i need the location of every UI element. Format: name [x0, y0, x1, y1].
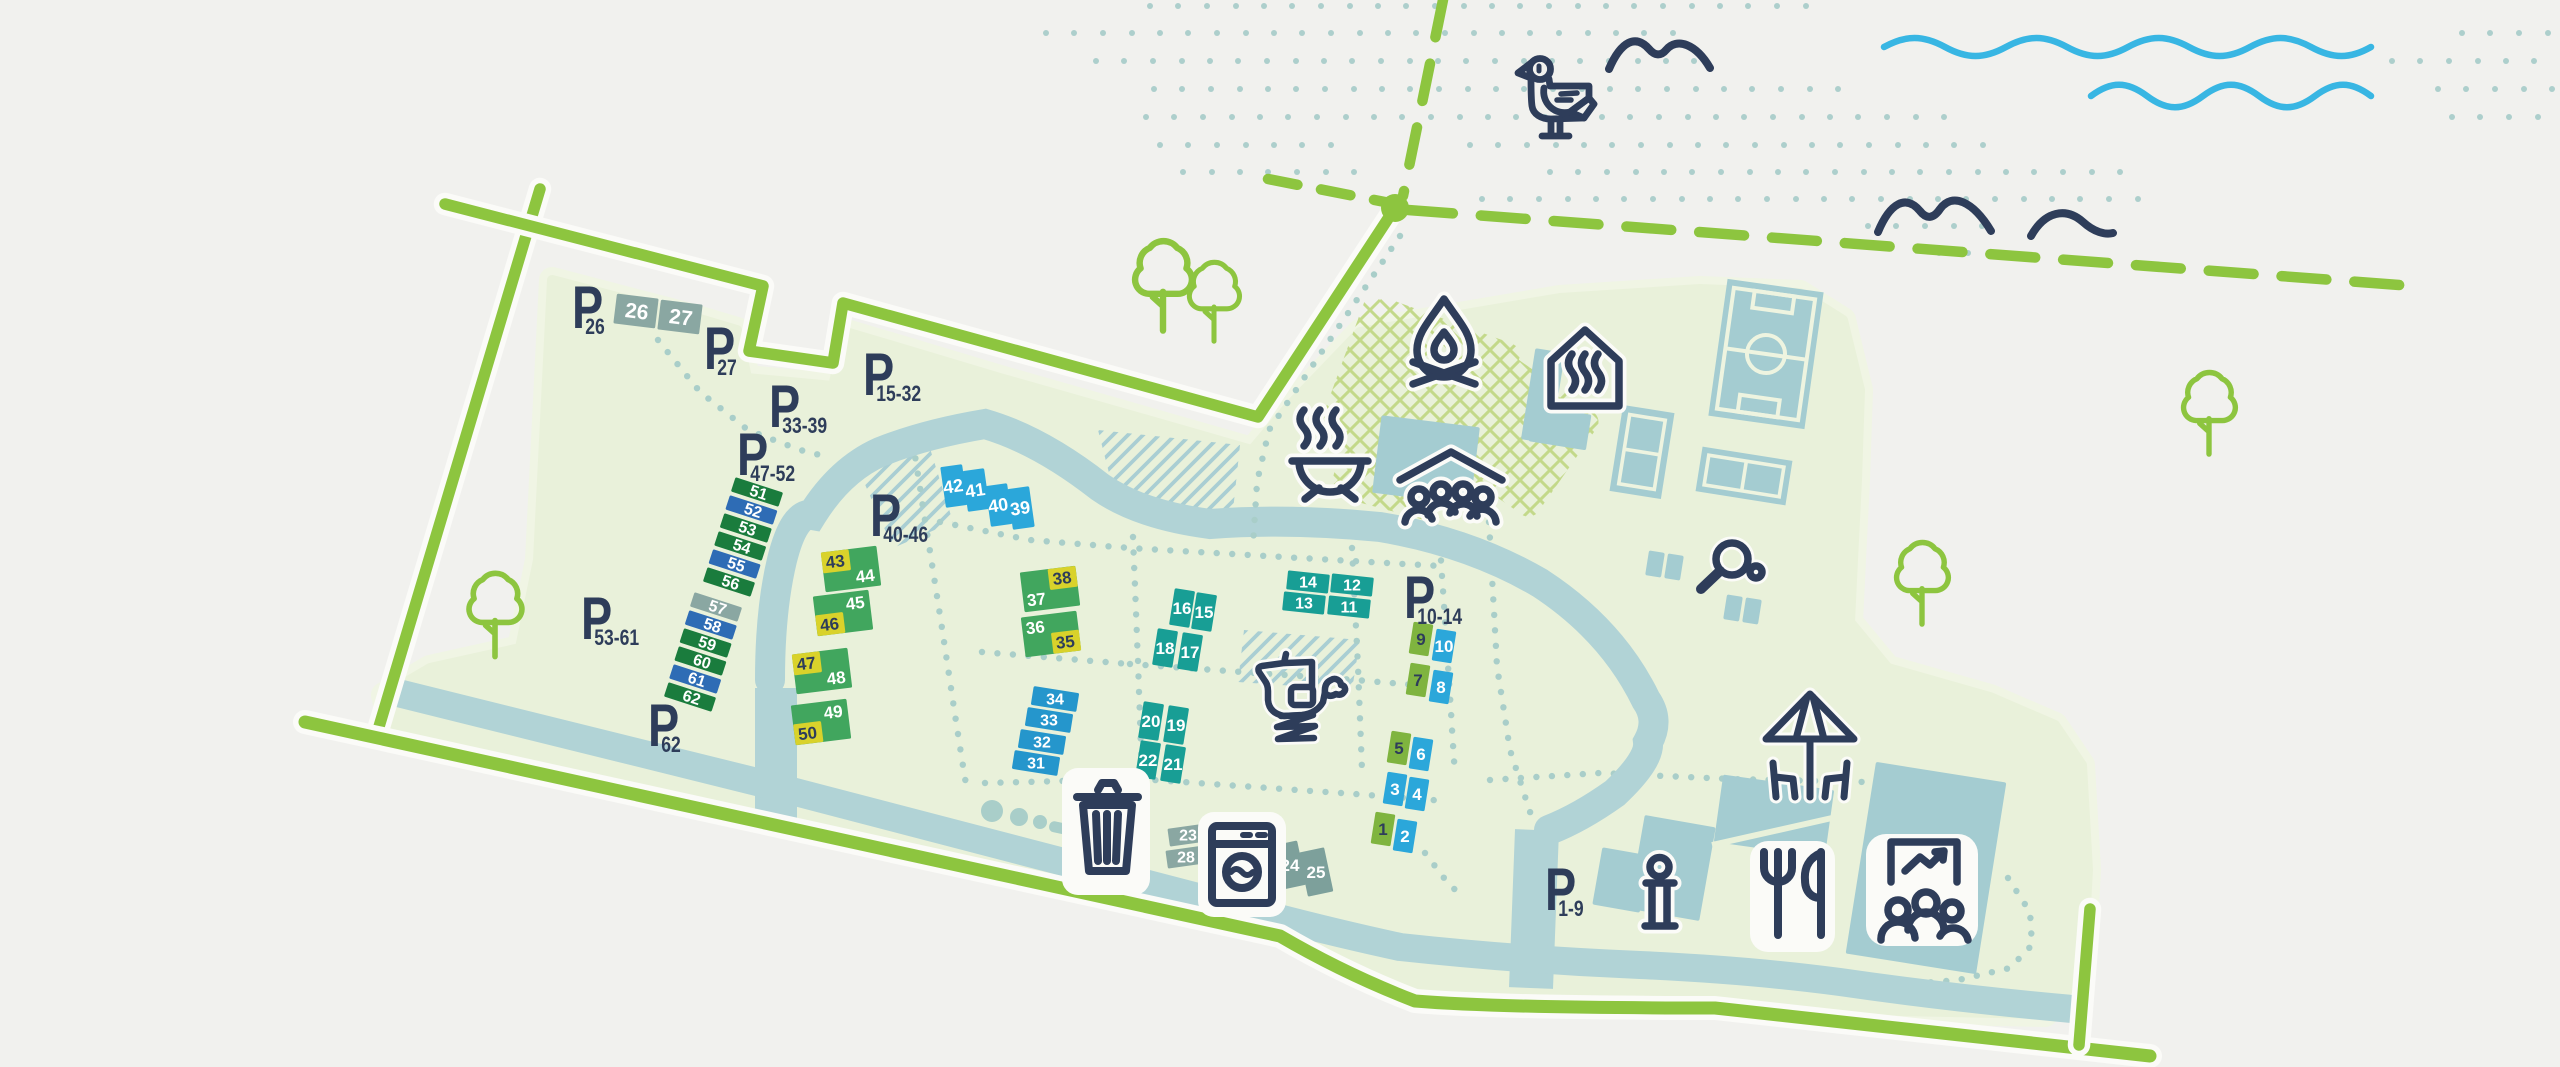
svg-text:26: 26 — [585, 315, 605, 340]
svg-text:10: 10 — [1435, 637, 1454, 656]
svg-text:9: 9 — [1416, 630, 1425, 649]
svg-text:37: 37 — [1026, 589, 1047, 610]
svg-text:35: 35 — [1055, 632, 1076, 653]
svg-text:19: 19 — [1167, 716, 1186, 735]
svg-text:21: 21 — [1164, 755, 1183, 774]
svg-text:49: 49 — [823, 702, 844, 723]
svg-text:12: 12 — [1343, 578, 1361, 595]
svg-text:34: 34 — [1046, 692, 1064, 709]
svg-text:3: 3 — [1390, 780, 1399, 799]
svg-text:33: 33 — [1040, 713, 1058, 730]
svg-text:44: 44 — [855, 566, 877, 587]
svg-text:41: 41 — [964, 479, 987, 502]
svg-text:31: 31 — [1027, 756, 1045, 773]
svg-text:22: 22 — [1139, 751, 1158, 770]
svg-text:62: 62 — [661, 733, 681, 758]
svg-text:32: 32 — [1033, 735, 1051, 752]
svg-text:53-61: 53-61 — [594, 626, 639, 651]
svg-text:36: 36 — [1025, 617, 1046, 638]
svg-text:27: 27 — [717, 356, 737, 381]
svg-text:28: 28 — [1177, 850, 1195, 867]
svg-text:1: 1 — [1378, 820, 1387, 839]
svg-text:8: 8 — [1436, 678, 1445, 697]
svg-text:7: 7 — [1413, 671, 1422, 690]
svg-text:43: 43 — [825, 551, 846, 572]
svg-text:4: 4 — [1412, 785, 1422, 804]
svg-text:17: 17 — [1181, 643, 1200, 662]
svg-text:6: 6 — [1416, 745, 1425, 764]
svg-text:42: 42 — [942, 475, 965, 498]
svg-text:26: 26 — [624, 299, 650, 325]
svg-text:25: 25 — [1307, 863, 1326, 882]
svg-text:18: 18 — [1156, 639, 1175, 658]
svg-text:39: 39 — [1009, 497, 1032, 520]
svg-text:46: 46 — [819, 614, 840, 635]
svg-text:27: 27 — [668, 305, 694, 331]
svg-text:10-14: 10-14 — [1417, 605, 1463, 630]
svg-text:40-46: 40-46 — [883, 523, 928, 548]
svg-text:23: 23 — [1179, 828, 1197, 845]
svg-text:13: 13 — [1295, 596, 1313, 613]
svg-text:1-9: 1-9 — [1558, 897, 1583, 922]
svg-text:48: 48 — [826, 668, 847, 689]
svg-text:47: 47 — [796, 653, 817, 674]
svg-text:45: 45 — [845, 593, 866, 614]
svg-text:5: 5 — [1394, 739, 1403, 758]
svg-text:50: 50 — [797, 723, 818, 744]
svg-text:2: 2 — [1400, 827, 1409, 846]
svg-text:11: 11 — [1341, 600, 1358, 617]
svg-text:40: 40 — [987, 494, 1010, 517]
svg-text:14: 14 — [1299, 575, 1317, 592]
svg-text:33-39: 33-39 — [782, 414, 827, 439]
svg-text:20: 20 — [1142, 712, 1161, 731]
svg-text:38: 38 — [1052, 568, 1073, 589]
svg-text:15-32: 15-32 — [876, 382, 921, 407]
svg-text:15: 15 — [1195, 603, 1214, 622]
svg-text:16: 16 — [1173, 599, 1192, 618]
svg-text:47-52: 47-52 — [750, 462, 795, 487]
